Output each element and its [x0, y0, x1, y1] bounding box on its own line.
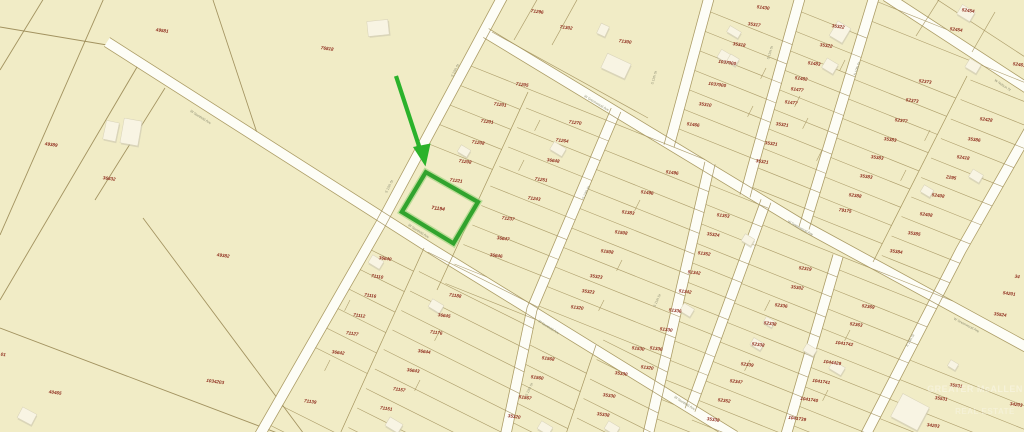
svg-text:REAL ESTATE: REAL ESTATE [955, 407, 1015, 416]
svg-text:GREATER McALLEN: GREATER McALLEN [927, 384, 1023, 394]
